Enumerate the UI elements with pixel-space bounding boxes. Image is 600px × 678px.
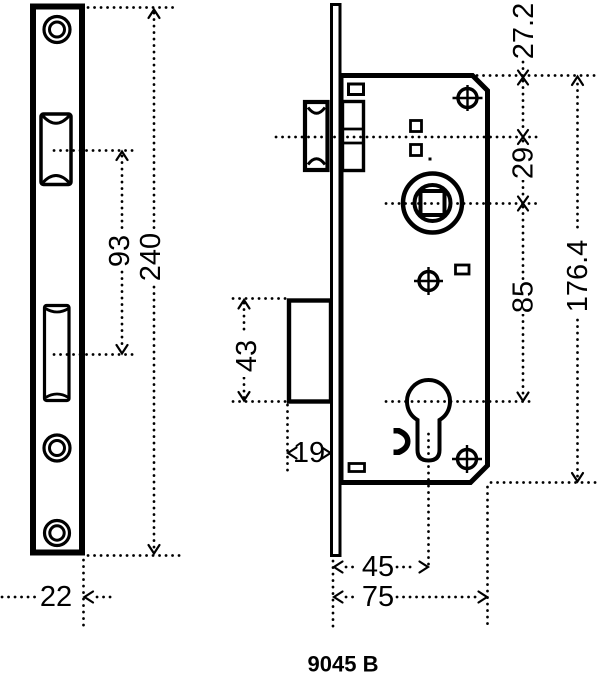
dim-case-length: 176.4	[562, 240, 594, 313]
dim-edge-to-latch: 27.2	[508, 3, 540, 59]
dim-front-center-spacing: 93	[104, 235, 136, 267]
dim-front-length: 240	[135, 233, 167, 281]
dim-backset: 45	[362, 551, 394, 583]
arrow-left	[334, 562, 343, 573]
dim-spindle-to-cylinder: 85	[508, 281, 540, 313]
arrow-right	[420, 562, 429, 573]
dim-case-depth: 75	[362, 581, 394, 613]
dim-bolt-throw: 19	[293, 437, 325, 469]
dim-front-plate-width: 22	[40, 581, 72, 613]
arrow-left	[85, 592, 94, 603]
faceplate-front	[33, 7, 82, 553]
front-view	[33, 7, 82, 553]
dim-bolt-pocket: 43	[231, 340, 263, 372]
deadbolt-side	[289, 301, 331, 402]
arrow-left	[334, 592, 343, 603]
pin-dot	[429, 158, 432, 161]
lock-technical-drawing: 240 93 22 27.2 29 85 176.4 43 19 45 75 9…	[0, 0, 600, 678]
arrow-right	[479, 592, 488, 603]
side-view	[289, 5, 488, 556]
faceplate-side	[332, 5, 341, 556]
dim-latch-to-spindle: 29	[508, 147, 540, 179]
arrow-down	[117, 345, 128, 354]
model-number: 9045 B	[308, 652, 379, 677]
